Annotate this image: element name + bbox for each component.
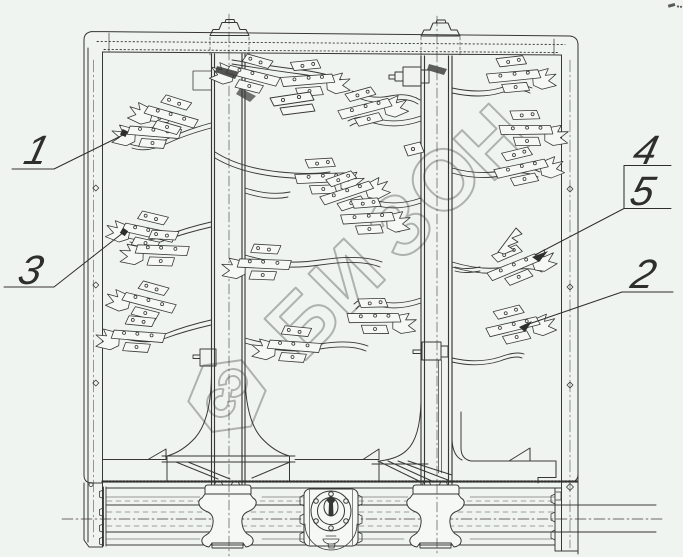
svg-text:2: 2 [626, 251, 661, 297]
svg-text:5: 5 [626, 168, 661, 214]
svg-text:3: 3 [14, 247, 48, 293]
svg-text:1: 1 [20, 127, 54, 173]
